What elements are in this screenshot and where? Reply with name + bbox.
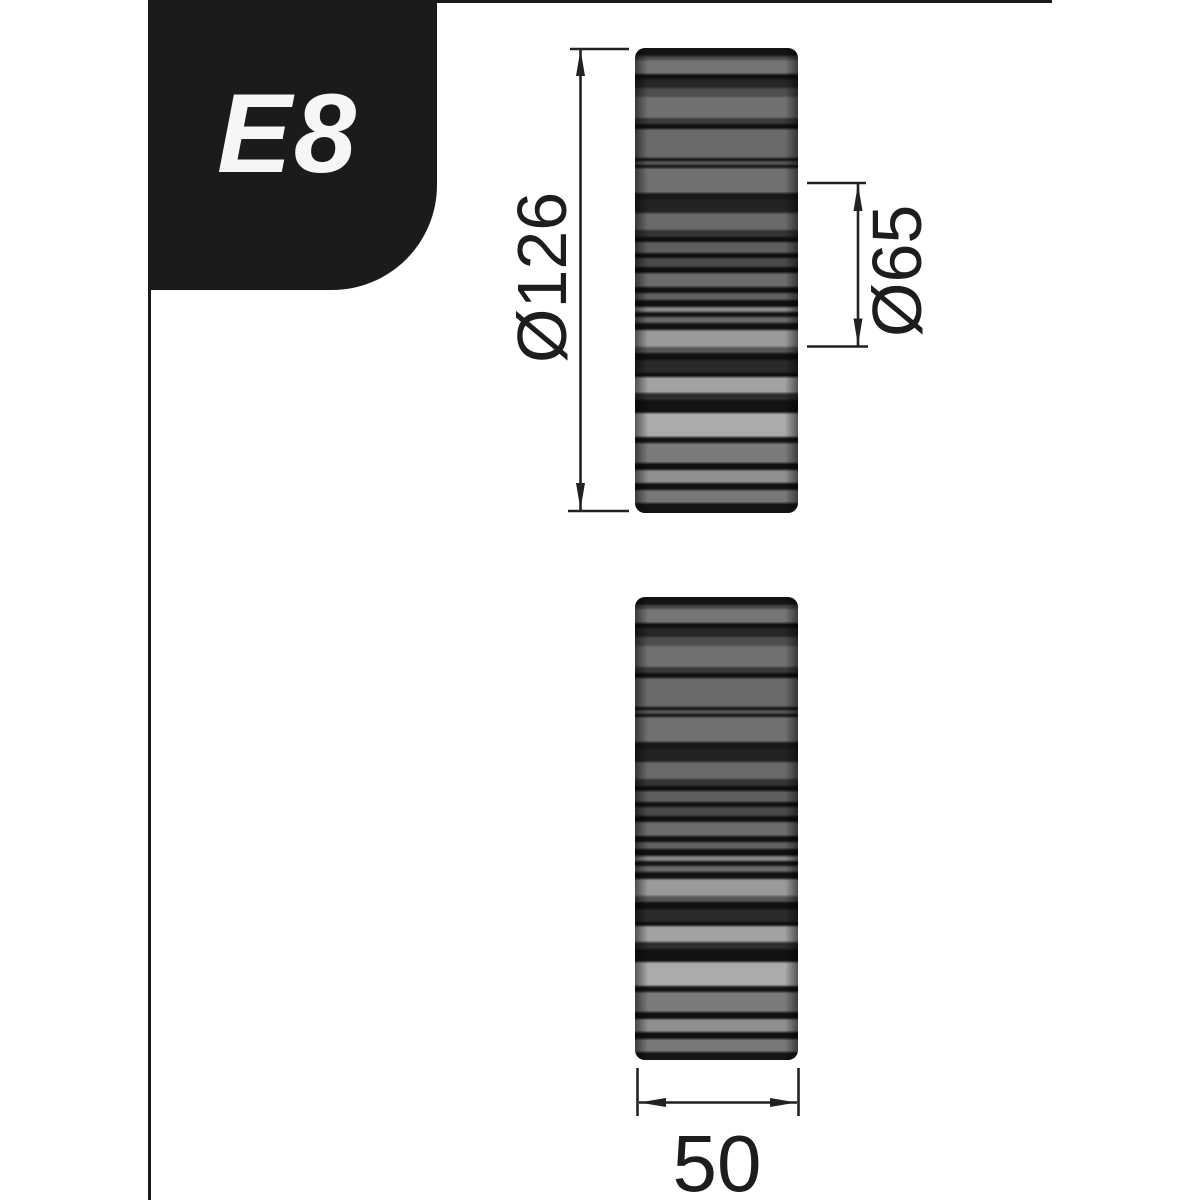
roller-side-view-bottom <box>635 597 798 1060</box>
type-badge-label: E8 <box>217 78 358 190</box>
type-badge: E8 <box>150 0 437 290</box>
dim-width-arrow-left <box>639 1098 666 1107</box>
dim-hub-arrow-down <box>854 319 863 346</box>
dim-label-hub-diameter: Ø65 <box>858 205 936 337</box>
roller-side-view-top <box>635 48 798 513</box>
dim-label-width: 50 <box>673 1119 762 1200</box>
dim-width: 50 <box>638 1068 799 1200</box>
dim-width-arrow-right <box>770 1098 797 1107</box>
dim-outer-arrow-up <box>576 50 585 77</box>
dim-outer-diameter: Ø126 <box>503 49 629 511</box>
dim-hub-arrow-up <box>854 184 863 211</box>
dim-hub-diameter: Ø65 <box>807 183 936 347</box>
dim-label-outer-diameter: Ø126 <box>503 192 581 363</box>
product-drawing-canvas: E8 Ø126 Ø65 50 <box>0 0 1200 1200</box>
dim-outer-arrow-down <box>576 483 585 510</box>
